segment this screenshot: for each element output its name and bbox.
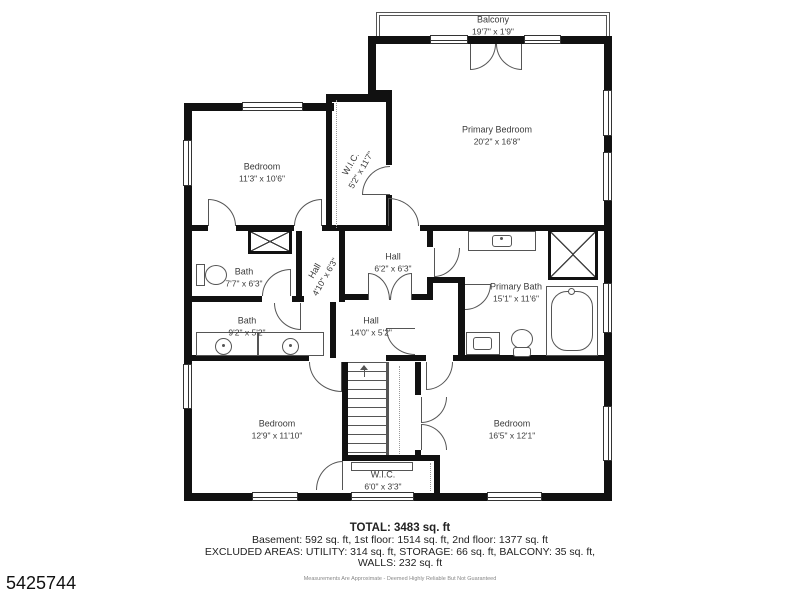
room-label-bath-lower: Bath 9'2" x 5'2" bbox=[228, 316, 265, 339]
area-summary: TOTAL: 3483 sq. ft Basement: 592 sq. ft,… bbox=[0, 521, 800, 583]
window bbox=[183, 140, 192, 186]
toilet-tank bbox=[196, 264, 205, 286]
closet-x-icon bbox=[248, 229, 292, 254]
room-label-hall-small: Hall 4'10" x 6'3" bbox=[300, 250, 341, 298]
closet-rail bbox=[336, 100, 337, 228]
toilet-bowl bbox=[205, 265, 227, 285]
door-arc bbox=[274, 303, 301, 330]
wall bbox=[330, 302, 336, 358]
floor-plan-page: Balcony 19'7" x 1'9" bbox=[0, 0, 800, 600]
sink bbox=[473, 337, 492, 350]
window bbox=[242, 102, 303, 111]
room-label-hall-main: Hall 14'0" x 5'2" bbox=[350, 316, 392, 339]
window bbox=[524, 35, 561, 44]
wall bbox=[386, 94, 392, 165]
door-arc bbox=[388, 198, 419, 226]
window bbox=[430, 35, 468, 44]
door-arc bbox=[309, 362, 342, 392]
balcony-label: Balcony 19'7" x 1'9" bbox=[472, 15, 514, 38]
room-label-bedroom-bottom-right: Bedroom 16'5" x 12'1" bbox=[489, 419, 536, 442]
wall bbox=[184, 225, 208, 231]
window bbox=[351, 492, 414, 501]
door-arc bbox=[470, 44, 496, 70]
wall bbox=[415, 362, 421, 395]
wall bbox=[458, 283, 465, 358]
wall bbox=[292, 296, 304, 302]
wall bbox=[296, 231, 302, 302]
room-label-bedroom-top-left: Bedroom 11'3" x 10'6" bbox=[239, 162, 285, 185]
shower-icon bbox=[548, 229, 598, 280]
window bbox=[603, 406, 612, 461]
window bbox=[252, 492, 298, 501]
room-label-bath-top: Bath 7'7" x 6'3" bbox=[225, 267, 262, 290]
door-arc bbox=[262, 269, 291, 296]
closet-rail bbox=[399, 366, 400, 454]
room-label-primary-bedroom: Primary Bedroom 20'2" x 16'8" bbox=[462, 125, 532, 148]
wall bbox=[386, 355, 426, 361]
wall bbox=[434, 461, 440, 493]
wall bbox=[345, 294, 368, 300]
wall bbox=[368, 36, 612, 44]
door-arc bbox=[368, 273, 390, 300]
wall bbox=[427, 231, 433, 247]
wall-area: WALLS: 232 sq. ft bbox=[0, 558, 800, 570]
room-label-primary-bath: Primary Bath 15'1" x 11'6" bbox=[490, 282, 542, 305]
door-arc bbox=[294, 199, 322, 226]
window bbox=[603, 90, 612, 136]
room-label-bedroom-bottom-left: Bedroom 12'9" x 11'10" bbox=[252, 419, 303, 442]
door-arc bbox=[421, 424, 447, 450]
window bbox=[603, 283, 612, 333]
window bbox=[487, 492, 542, 501]
toilet-tank bbox=[513, 347, 531, 357]
wall bbox=[433, 277, 465, 283]
faucet-icon bbox=[289, 344, 292, 347]
door-arc bbox=[390, 273, 412, 300]
faucet-icon bbox=[500, 237, 503, 240]
stairs-up-arrow-icon bbox=[364, 366, 365, 377]
faucet-icon bbox=[568, 288, 575, 295]
wall bbox=[326, 94, 332, 231]
wall bbox=[386, 362, 389, 458]
window bbox=[183, 364, 192, 409]
room-label-hall-mid: Hall 6'2" x 6'3" bbox=[374, 252, 411, 275]
door-arc bbox=[434, 248, 460, 277]
floor-areas: Basement: 592 sq. ft, 1st floor: 1514 sq… bbox=[0, 535, 800, 547]
door-arc bbox=[208, 199, 236, 226]
door-arc bbox=[426, 362, 453, 390]
room-label-wic-bottom: W.I.C. 6'0" x 3'3" bbox=[364, 470, 401, 493]
door-arc bbox=[316, 461, 343, 490]
wall bbox=[339, 231, 345, 302]
wall bbox=[322, 225, 388, 231]
door-arc bbox=[465, 284, 491, 310]
total-area: TOTAL: 3483 sq. ft bbox=[0, 521, 800, 535]
bathtub-basin bbox=[551, 291, 593, 351]
faucet-icon bbox=[222, 344, 225, 347]
wall bbox=[184, 296, 262, 302]
listing-id: 5425744 bbox=[6, 573, 76, 594]
staircase bbox=[348, 362, 386, 456]
closet-rail bbox=[430, 463, 431, 491]
door-arc bbox=[496, 44, 522, 70]
door-arc bbox=[421, 397, 447, 423]
disclaimer: Measurements Are Approximate - Deemed Hi… bbox=[0, 575, 800, 583]
window bbox=[603, 152, 612, 201]
toilet-bowl bbox=[511, 329, 533, 349]
wall bbox=[412, 294, 433, 300]
wall bbox=[368, 36, 376, 98]
